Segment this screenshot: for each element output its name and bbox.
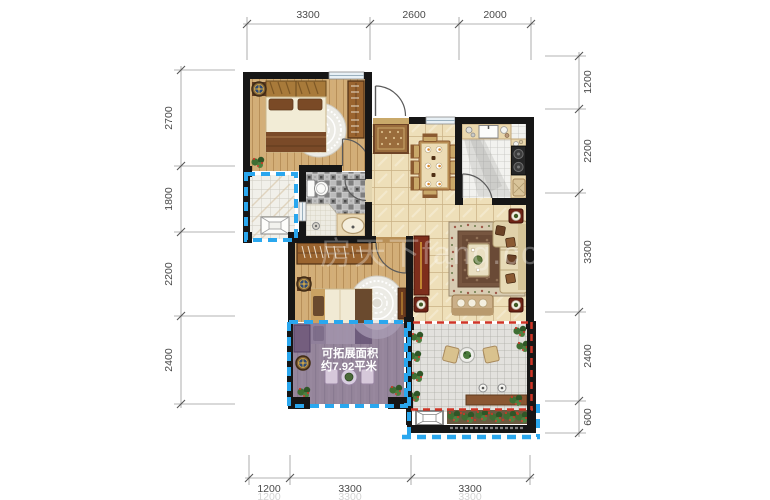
svg-text:约7.92平米: 约7.92平米 bbox=[321, 359, 378, 373]
svg-text:2200: 2200 bbox=[582, 139, 594, 163]
svg-text:2600: 2600 bbox=[402, 9, 426, 21]
svg-text:1200: 1200 bbox=[257, 491, 281, 500]
svg-text:3300: 3300 bbox=[296, 9, 320, 21]
svg-text:1200: 1200 bbox=[582, 70, 594, 94]
svg-text:1800: 1800 bbox=[163, 187, 175, 211]
svg-text:可拓展面积: 可拓展面积 bbox=[322, 346, 379, 360]
svg-text:3300: 3300 bbox=[338, 491, 362, 500]
svg-text:600: 600 bbox=[582, 408, 594, 426]
svg-text:2200: 2200 bbox=[163, 262, 175, 286]
svg-text:2400: 2400 bbox=[163, 348, 175, 372]
svg-text:3300: 3300 bbox=[582, 240, 594, 264]
svg-text:2400: 2400 bbox=[582, 344, 594, 368]
svg-text:2700: 2700 bbox=[163, 106, 175, 130]
svg-text:房天下fang.com: 房天下fang.com bbox=[320, 235, 570, 271]
svg-text:2000: 2000 bbox=[483, 9, 507, 21]
svg-text:3300: 3300 bbox=[458, 491, 482, 500]
